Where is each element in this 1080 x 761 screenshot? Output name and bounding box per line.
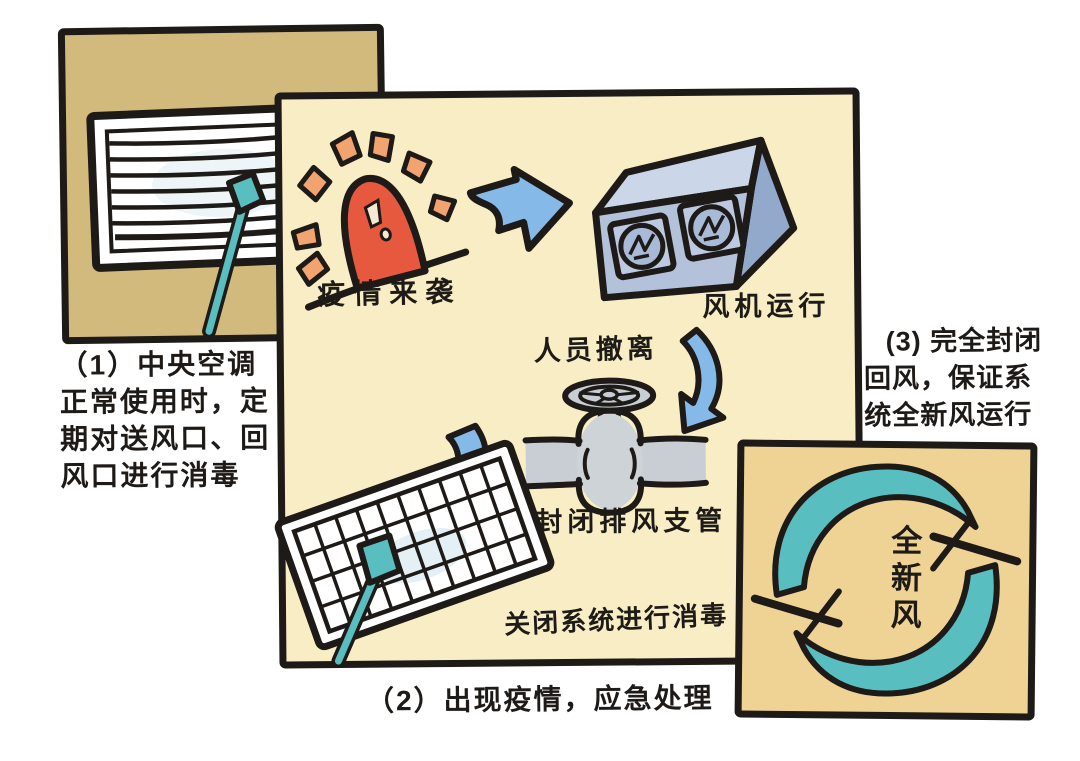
caption-step2: （2）出现疫情，应急处理 (366, 676, 714, 719)
fan-left (609, 215, 674, 278)
panel-step3: 全新风 (735, 439, 1038, 720)
valve-handwheel (565, 380, 653, 411)
label-close-exhaust: 封闭排风支管 (535, 499, 727, 540)
label-alarm: 疫情来袭 (317, 270, 462, 314)
fan-right (679, 196, 744, 259)
fresh-air-crescent-top (755, 465, 977, 625)
label-fan-running: 风机运行 (702, 284, 830, 324)
caption-step3: (3) 完全封闭 回风，保证系 统全新风运行 (864, 322, 1043, 435)
illustration-canvas: （1）中央空调 正常使用时，定 期对送风口、回 风口进行消毒 (0, 0, 1080, 761)
caption-step1: （1）中央空调 正常使用时，定 期对送风口、回 风口进行消毒 (59, 345, 270, 494)
label-evacuate: 人员撤离 (533, 326, 658, 368)
fan-unit-icon (583, 126, 800, 308)
arrow-right-icon (462, 166, 578, 257)
label-fresh-air: 全新风 (880, 524, 926, 635)
